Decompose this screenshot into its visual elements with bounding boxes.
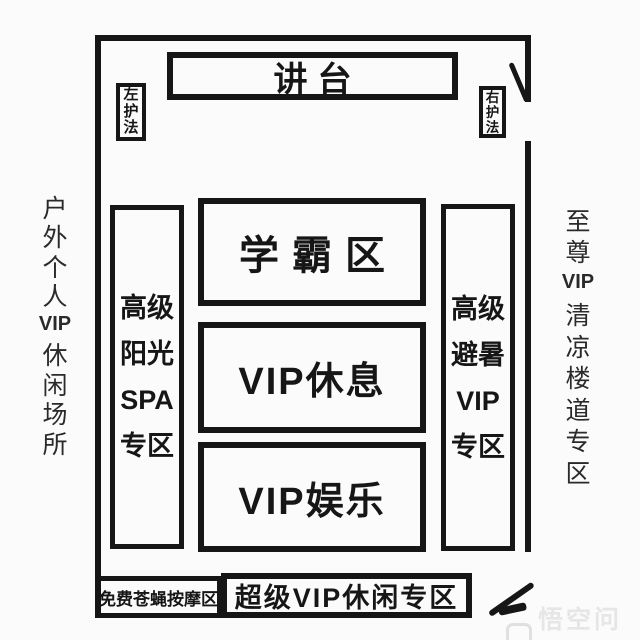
label-supreme-vip-corridor: 至 尊 VIP 清 凉 楼 道 专 区 bbox=[552, 204, 604, 488]
zone-vip-rest: VIP休息 bbox=[198, 322, 426, 433]
room-wall-right-lower bbox=[525, 141, 531, 552]
zone-summer-escape: 高级 避暑 VIP 专区 bbox=[441, 204, 515, 551]
zone-sunshine-spa: 高级 阳光 SPA 专区 bbox=[110, 205, 184, 549]
zone-top-students: 学霸区 bbox=[198, 198, 426, 306]
left-guard-char: 法 bbox=[123, 120, 138, 137]
podium-box: 讲台 bbox=[167, 52, 458, 100]
right-guard-char: 右 bbox=[486, 90, 500, 105]
left-guard-char: 左 bbox=[123, 87, 138, 104]
room-wall-left bbox=[95, 35, 101, 618]
zone-fly-massage-label: 免费苍蝇按摩区 bbox=[99, 585, 218, 610]
right-guard-char: 法 bbox=[486, 120, 500, 135]
podium-label: 讲台 bbox=[274, 52, 362, 101]
zone-line: SPA bbox=[120, 377, 174, 423]
zone-vip-rest-label: VIP休息 bbox=[238, 350, 385, 405]
watermark-text: 悟空问答 bbox=[538, 600, 640, 640]
zone-line: VIP bbox=[456, 378, 500, 424]
zone-line: 高级 bbox=[120, 285, 174, 331]
zone-vip-entertainment: VIP娱乐 bbox=[198, 442, 426, 552]
watermark-logo-icon bbox=[506, 623, 532, 640]
zone-line: 高级 bbox=[451, 286, 505, 332]
classroom-seating-diagram: 讲台 左 护 法 右 护 法 高级 阳光 SPA 专区 高级 避暑 VIP 专区… bbox=[0, 0, 640, 640]
zone-fly-massage: 免费苍蝇按摩区 bbox=[95, 576, 222, 618]
right-guard-char: 护 bbox=[486, 105, 500, 120]
zone-vip-entertainment-label: VIP娱乐 bbox=[238, 470, 385, 525]
left-guard-char: 护 bbox=[123, 104, 138, 121]
zone-super-vip-leisure: 超级VIP休闲专区 bbox=[221, 573, 472, 618]
left-guard-box: 左 护 法 bbox=[116, 83, 146, 141]
label-outdoor-vip-area: 户 外 个 人 VIP 休 闲 场 所 bbox=[29, 192, 81, 458]
zone-super-vip-leisure-label: 超级VIP休闲专区 bbox=[235, 576, 459, 615]
zone-line: 阳光 bbox=[120, 331, 174, 377]
zone-line: 避暑 bbox=[451, 332, 505, 378]
room-wall-top bbox=[95, 35, 531, 41]
zone-top-students-label: 学霸区 bbox=[239, 223, 398, 281]
zone-line: 专区 bbox=[120, 423, 174, 469]
watermark: 悟空问答 bbox=[506, 600, 640, 640]
right-guard-box: 右 护 法 bbox=[479, 86, 506, 138]
zone-line: 专区 bbox=[451, 424, 505, 470]
